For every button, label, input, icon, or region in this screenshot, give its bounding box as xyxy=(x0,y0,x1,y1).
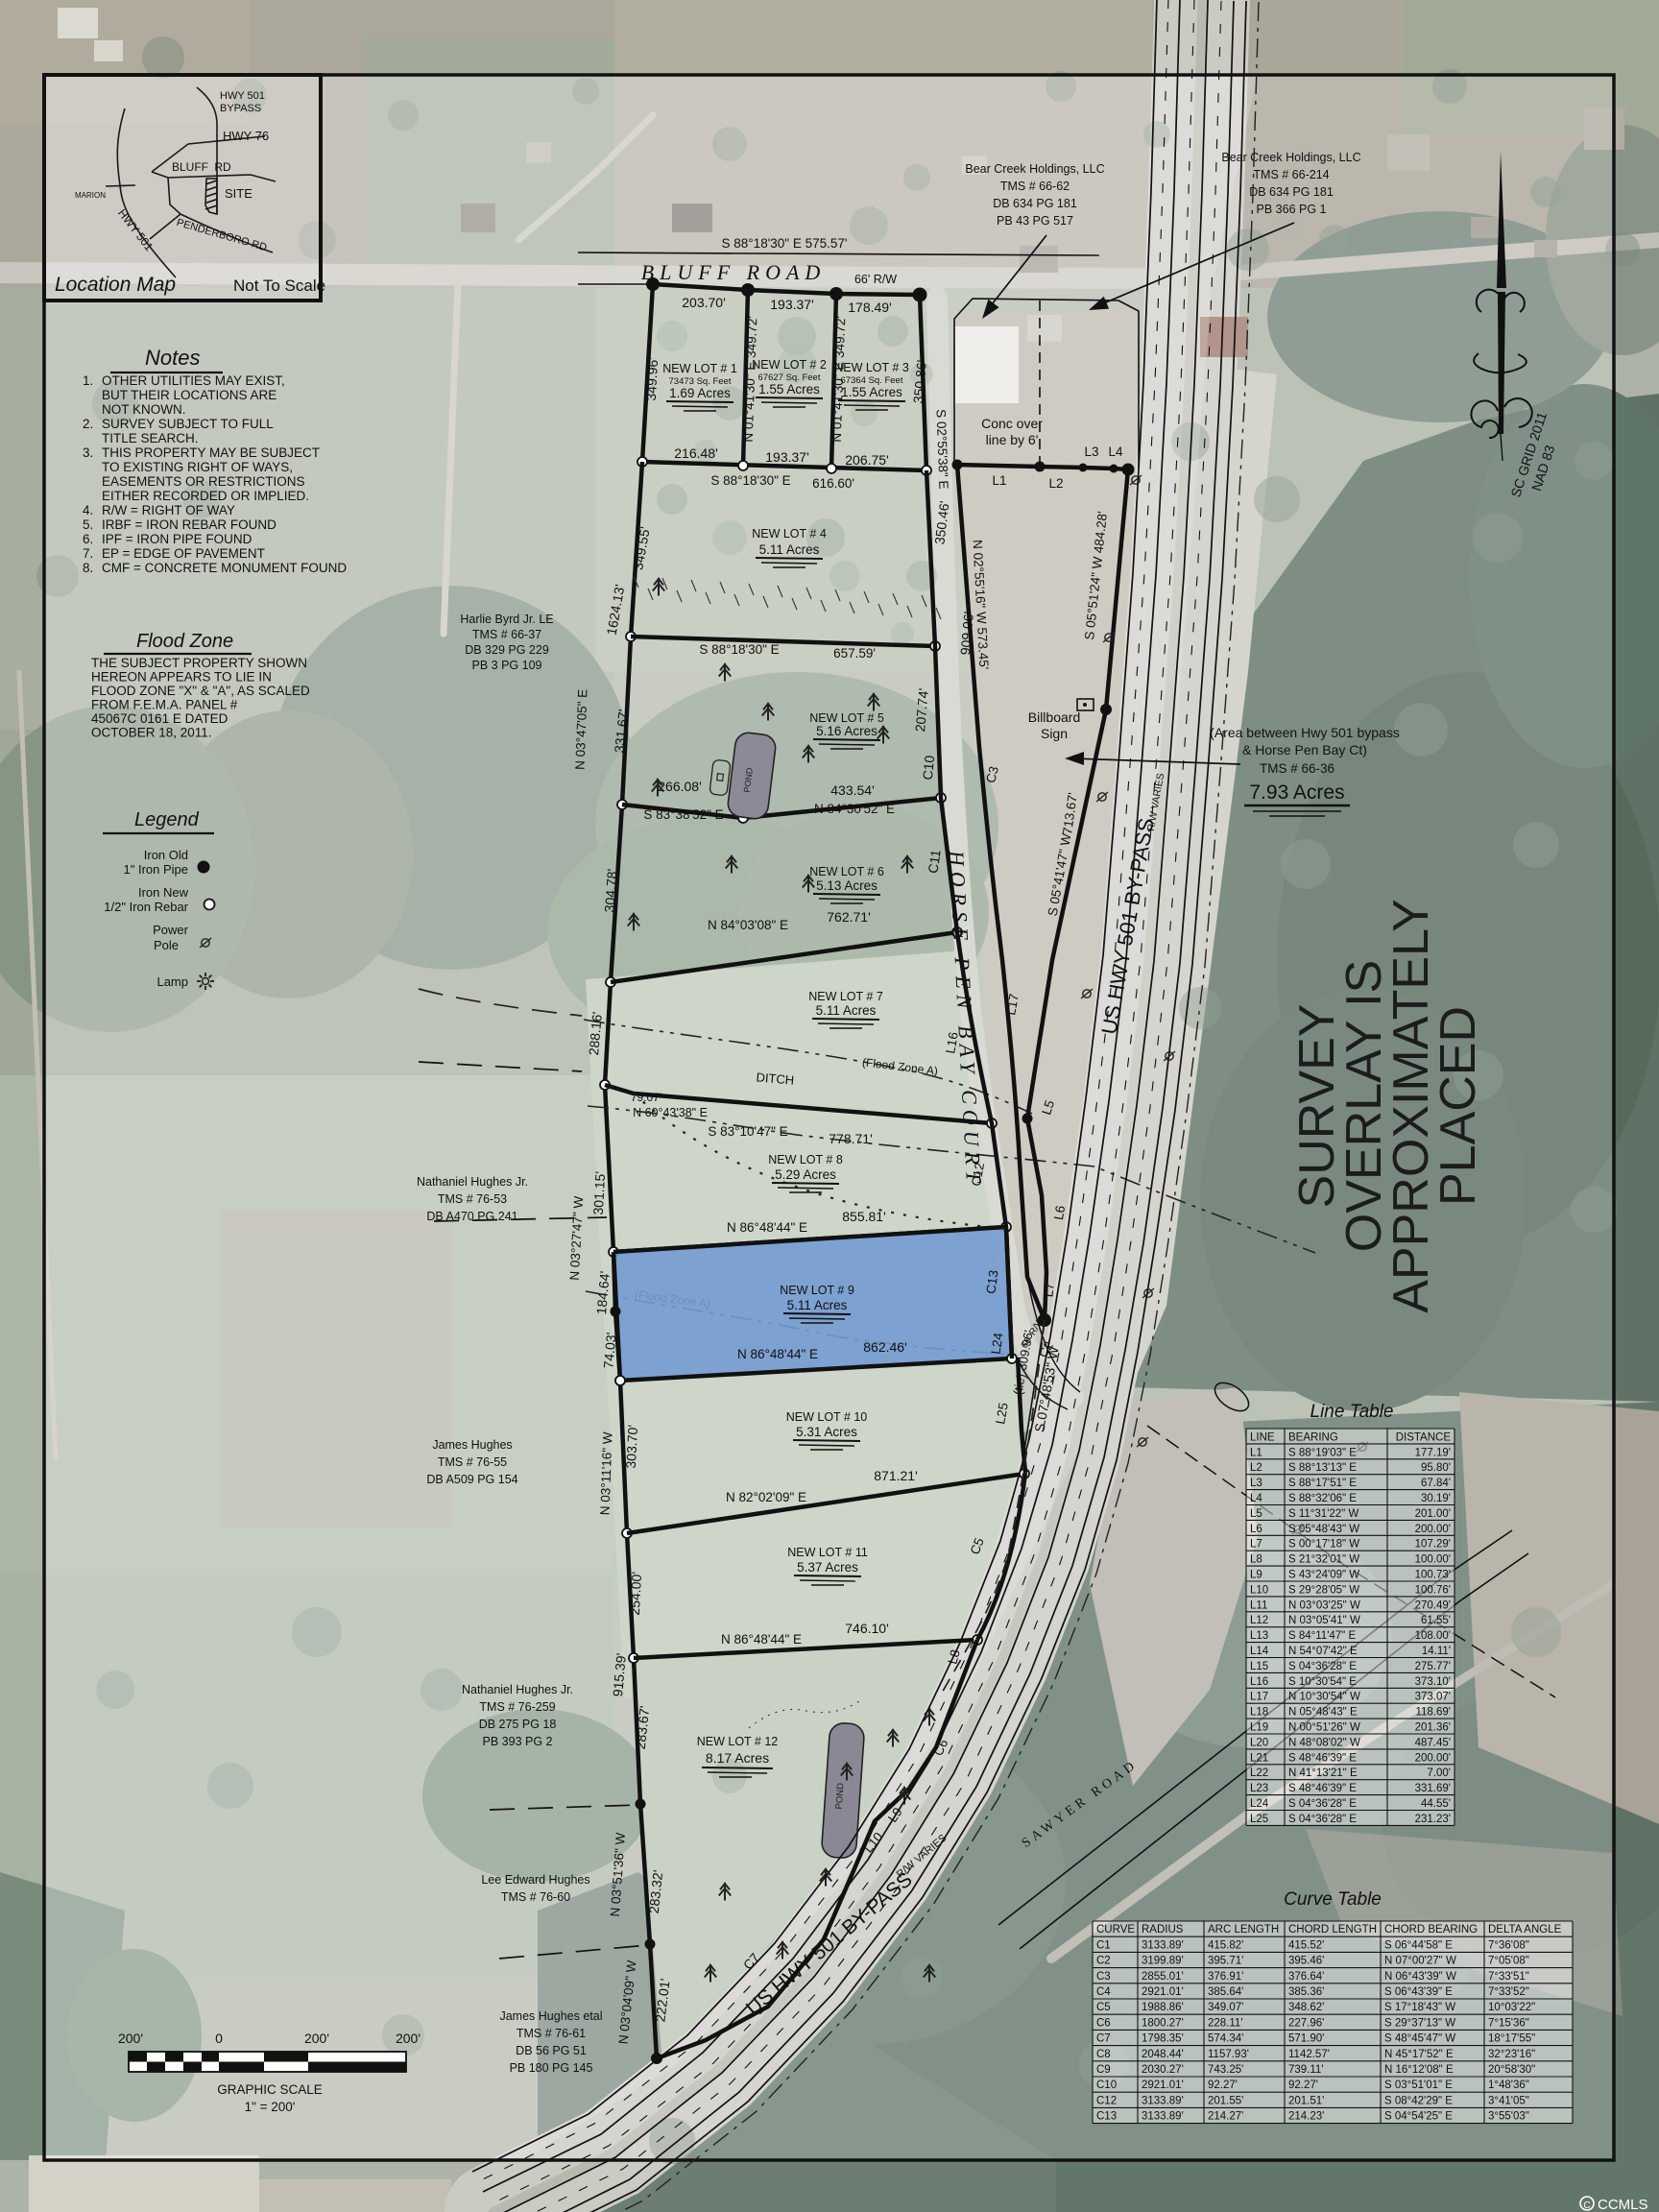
svg-text:DISTANCE: DISTANCE xyxy=(1396,1431,1452,1443)
svg-text:44.55': 44.55' xyxy=(1421,1798,1451,1810)
svg-text:3.: 3. xyxy=(83,445,93,460)
svg-text:0: 0 xyxy=(215,2031,223,2046)
svg-text:2855.01': 2855.01' xyxy=(1142,1971,1184,1983)
svg-text:Iron New: Iron New xyxy=(138,885,189,900)
svg-text:373.07': 373.07' xyxy=(1415,1692,1451,1703)
svg-text:C9: C9 xyxy=(1096,2064,1111,2076)
svg-text:L5: L5 xyxy=(1250,1508,1262,1520)
svg-text:C6: C6 xyxy=(1096,2017,1111,2029)
svg-text:C8: C8 xyxy=(1096,2049,1111,2060)
svg-text:TMS # 76-55: TMS # 76-55 xyxy=(438,1455,507,1469)
svg-text:TMS # 76-53: TMS # 76-53 xyxy=(438,1192,507,1206)
svg-text:Location Map: Location Map xyxy=(55,274,176,296)
svg-text:S 21°32'01" W: S 21°32'01" W xyxy=(1288,1554,1359,1566)
svg-text:Curve Table: Curve Table xyxy=(1284,1889,1382,1910)
svg-text:NEW LOT # 10: NEW LOT # 10 xyxy=(786,1410,868,1424)
svg-text:EASEMENTS OR RESTRICTIONS: EASEMENTS OR RESTRICTIONS xyxy=(102,474,305,489)
svg-text:100.00': 100.00' xyxy=(1415,1554,1451,1566)
svg-text:L17: L17 xyxy=(1250,1692,1268,1703)
svg-text:S 06°43'39" E: S 06°43'39" E xyxy=(1384,1986,1453,1998)
svg-text:S 08°42'29" E: S 08°42'29" E xyxy=(1384,2095,1453,2106)
svg-text:S 43°24'09" W: S 43°24'09" W xyxy=(1288,1570,1359,1581)
svg-text:N 48°08'02" W: N 48°08'02" W xyxy=(1288,1737,1360,1748)
svg-text:C10: C10 xyxy=(1096,2080,1117,2091)
svg-text:3133.89': 3133.89' xyxy=(1142,2095,1184,2106)
svg-text:349.96': 349.96' xyxy=(643,357,661,401)
svg-text:415.82': 415.82' xyxy=(1208,1939,1243,1951)
svg-text:Flood Zone: Flood Zone xyxy=(136,631,233,652)
svg-text:100.73': 100.73' xyxy=(1415,1570,1451,1581)
svg-text:L6: L6 xyxy=(1051,1205,1068,1221)
svg-text:200.00': 200.00' xyxy=(1415,1524,1451,1535)
svg-text:N 03°47'05" E: N 03°47'05" E xyxy=(573,689,590,771)
svg-text:L9: L9 xyxy=(1250,1570,1262,1581)
svg-text:385.36': 385.36' xyxy=(1288,1986,1324,1998)
svg-text:657.59': 657.59' xyxy=(833,646,876,661)
svg-text:45067C 0161 E DATED: 45067C 0161 E DATED xyxy=(91,711,228,726)
svg-text:N 16°12'08" E: N 16°12'08" E xyxy=(1384,2064,1454,2076)
svg-text:DB A509 PG 154: DB A509 PG 154 xyxy=(426,1473,517,1486)
svg-text:N 03°03'25" W: N 03°03'25" W xyxy=(1288,1599,1360,1611)
svg-text:TITLE SEARCH.: TITLE SEARCH. xyxy=(102,431,199,445)
svg-text:30.19': 30.19' xyxy=(1421,1493,1451,1504)
svg-text:Power: Power xyxy=(153,923,189,937)
svg-text:S 48°45'47" W: S 48°45'47" W xyxy=(1384,2033,1455,2045)
svg-text:S 00°17'18" W: S 00°17'18" W xyxy=(1288,1539,1359,1551)
svg-text:7°33'52": 7°33'52" xyxy=(1488,1986,1529,1998)
svg-text:5.13 Acres: 5.13 Acres xyxy=(816,878,878,893)
svg-text:1157.93': 1157.93' xyxy=(1208,2049,1249,2060)
svg-text:395.46': 395.46' xyxy=(1288,1956,1324,1967)
svg-text:S 10°30'54" E: S 10°30'54" E xyxy=(1288,1676,1357,1688)
svg-text:Iron Old: Iron Old xyxy=(144,848,188,862)
svg-text:487.45': 487.45' xyxy=(1415,1737,1451,1748)
svg-text:201.51': 201.51' xyxy=(1288,2095,1324,2106)
svg-text:NEW LOT # 8: NEW LOT # 8 xyxy=(768,1153,843,1166)
svg-text:Harlie Byrd Jr. LE: Harlie Byrd Jr. LE xyxy=(460,613,553,626)
svg-text:7°15'36": 7°15'36" xyxy=(1488,2017,1529,2029)
svg-text:N 03°11'16" W: N 03°11'16" W xyxy=(597,1431,614,1516)
svg-text:N 86°48'44" E: N 86°48'44" E xyxy=(721,1632,802,1647)
svg-text:L23: L23 xyxy=(1250,1783,1268,1794)
svg-text:739.11': 739.11' xyxy=(1288,2064,1324,2076)
svg-text:376.91': 376.91' xyxy=(1208,1971,1243,1983)
svg-text:NEW LOT # 1: NEW LOT # 1 xyxy=(662,362,737,375)
svg-text:N 41°13'21" E: N 41°13'21" E xyxy=(1288,1767,1358,1779)
svg-text:778.71': 778.71' xyxy=(829,1131,873,1146)
svg-text:92.27': 92.27' xyxy=(1288,2080,1318,2091)
svg-text:Not To Scale: Not To Scale xyxy=(233,276,325,295)
svg-text:66' R/W: 66' R/W xyxy=(854,273,897,286)
svg-text:5.11 Acres: 5.11 Acres xyxy=(816,1003,877,1018)
svg-text:(Area between Hwy 501 bypass: (Area between Hwy 501 bypass xyxy=(1210,725,1400,740)
svg-text:177.19': 177.19' xyxy=(1415,1447,1451,1458)
svg-text:N 03°05'41" W: N 03°05'41" W xyxy=(1288,1615,1360,1626)
svg-text:14.11': 14.11' xyxy=(1422,1646,1451,1657)
svg-text:N 10°30'54" W: N 10°30'54" W xyxy=(1288,1692,1360,1703)
svg-text:2921.01': 2921.01' xyxy=(1142,1986,1184,1998)
svg-text:348.62': 348.62' xyxy=(1288,2002,1324,2013)
svg-text:TO EXISTING RIGHT OF WAYS,: TO EXISTING RIGHT OF WAYS, xyxy=(102,460,293,474)
svg-text:N 45°17'52" E: N 45°17'52" E xyxy=(1384,2049,1454,2060)
svg-text:10°03'22": 10°03'22" xyxy=(1488,2002,1535,2013)
svg-text:L20: L20 xyxy=(1250,1737,1268,1748)
svg-text:1/2" Iron Rebar: 1/2" Iron Rebar xyxy=(104,900,188,914)
svg-text:5.11 Acres: 5.11 Acres xyxy=(759,542,820,557)
svg-text:Billboard: Billboard xyxy=(1028,709,1080,725)
svg-text:7.00': 7.00' xyxy=(1427,1767,1451,1779)
svg-text:L7: L7 xyxy=(1250,1539,1262,1551)
svg-text:HWY 76: HWY 76 xyxy=(223,129,269,143)
svg-text:92.27': 92.27' xyxy=(1208,2080,1238,2091)
svg-text:203.70': 203.70' xyxy=(682,295,726,310)
svg-text:L4: L4 xyxy=(1108,445,1123,459)
svg-text:1.55 Acres: 1.55 Acres xyxy=(841,385,902,399)
svg-text:BLUFF ROAD: BLUFF ROAD xyxy=(641,260,827,284)
svg-text:385.64': 385.64' xyxy=(1208,1986,1243,1998)
svg-text:BLUFF: BLUFF xyxy=(172,160,208,174)
svg-text:L14: L14 xyxy=(1250,1646,1269,1657)
svg-text:TMS # 76-60: TMS # 76-60 xyxy=(501,1890,570,1904)
svg-text:200': 200' xyxy=(396,2031,421,2046)
svg-text:1142.57': 1142.57' xyxy=(1288,2049,1330,2060)
svg-text:Bear Creek Holdings, LLC: Bear Creek Holdings, LLC xyxy=(1221,151,1360,164)
svg-text:108.00': 108.00' xyxy=(1415,1630,1451,1642)
svg-text:1.69 Acres: 1.69 Acres xyxy=(669,386,731,400)
svg-text:S 03°51'01" E: S 03°51'01" E xyxy=(1384,2080,1453,2091)
svg-text:200.00': 200.00' xyxy=(1415,1752,1451,1764)
svg-text:304.78': 304.78' xyxy=(601,868,619,913)
svg-text:IRBF = IRON REBAR FOUND: IRBF = IRON REBAR FOUND xyxy=(102,517,276,532)
svg-text:L11: L11 xyxy=(1250,1599,1267,1611)
svg-text:2.: 2. xyxy=(83,417,93,431)
svg-text:193.37': 193.37' xyxy=(765,449,809,465)
svg-text:L24: L24 xyxy=(989,1332,1006,1356)
svg-text:L13: L13 xyxy=(1250,1630,1268,1642)
svg-text:C1: C1 xyxy=(1096,1939,1111,1951)
svg-text:S 29°37'13" W: S 29°37'13" W xyxy=(1384,2017,1455,2029)
svg-text:PB 366 PG 1: PB 366 PG 1 xyxy=(1257,203,1327,216)
svg-text:BUT THEIR LOCATIONS ARE: BUT THEIR LOCATIONS ARE xyxy=(102,388,276,402)
svg-text:3199.89': 3199.89' xyxy=(1142,1956,1184,1967)
svg-text:301.15': 301.15' xyxy=(590,1171,608,1215)
svg-text:N 06°43'39" W: N 06°43'39" W xyxy=(1384,1971,1456,1983)
svg-text:DB 634 PG 181: DB 634 PG 181 xyxy=(1249,185,1334,199)
svg-text:L3: L3 xyxy=(1084,445,1098,459)
svg-text:1" Iron Pipe: 1" Iron Pipe xyxy=(124,862,189,877)
svg-text:Pole: Pole xyxy=(154,938,179,952)
svg-text:L10: L10 xyxy=(1250,1584,1268,1596)
svg-text:100.76': 100.76' xyxy=(1415,1584,1451,1596)
svg-text:TMS # 76-61: TMS # 76-61 xyxy=(517,2027,586,2040)
svg-text:THE SUBJECT PROPERTY SHOWN: THE SUBJECT PROPERTY SHOWN xyxy=(91,656,307,670)
svg-text:TMS # 66-37: TMS # 66-37 xyxy=(472,628,541,641)
svg-text:201.55': 201.55' xyxy=(1208,2095,1243,2106)
svg-text:C5: C5 xyxy=(1096,2002,1111,2013)
svg-text:NEW LOT # 12: NEW LOT # 12 xyxy=(697,1735,779,1748)
svg-text:DB 329 PG 229: DB 329 PG 229 xyxy=(465,643,549,657)
svg-text:L22: L22 xyxy=(1250,1767,1268,1779)
svg-text:L6: L6 xyxy=(1250,1524,1262,1535)
svg-text:571.90': 571.90' xyxy=(1288,2033,1324,2045)
svg-text:214.23': 214.23' xyxy=(1288,2111,1324,2123)
svg-text:BEARING: BEARING xyxy=(1288,1431,1338,1443)
svg-text:1988.86': 1988.86' xyxy=(1142,2002,1184,2013)
svg-text:Lamp: Lamp xyxy=(156,974,188,989)
svg-text:N 82°02'09" E: N 82°02'09" E xyxy=(726,1490,806,1504)
svg-text:HEREON APPEARS TO LIE IN: HEREON APPEARS TO LIE IN xyxy=(91,670,272,685)
svg-text:303.70': 303.70' xyxy=(623,1425,640,1469)
svg-text:5.11 Acres: 5.11 Acres xyxy=(787,1298,848,1312)
svg-text:NEW LOT # 11: NEW LOT # 11 xyxy=(787,1546,868,1559)
svg-text:S 48°46'39" E: S 48°46'39" E xyxy=(1288,1783,1357,1794)
svg-text:C4: C4 xyxy=(1096,1986,1111,1998)
svg-text:C11: C11 xyxy=(925,849,943,875)
svg-text:L8: L8 xyxy=(1250,1554,1262,1566)
svg-text:S 88°32'06" E: S 88°32'06" E xyxy=(1288,1493,1357,1504)
svg-text:95.80': 95.80' xyxy=(1421,1462,1451,1474)
svg-text:S 17°18'43" W: S 17°18'43" W xyxy=(1384,2002,1455,2013)
svg-text:& Horse Pen Bay Ct): & Horse Pen Bay Ct) xyxy=(1242,742,1367,757)
svg-text:NEW LOT # 5: NEW LOT # 5 xyxy=(809,711,884,725)
svg-text:3°55'03": 3°55'03" xyxy=(1488,2111,1529,2123)
svg-text:Line Table: Line Table xyxy=(1310,1402,1394,1422)
svg-text:862.46': 862.46' xyxy=(863,1339,907,1355)
svg-text:61.55': 61.55' xyxy=(1421,1615,1451,1626)
svg-text:Nathaniel Hughes Jr.: Nathaniel Hughes Jr. xyxy=(417,1175,528,1189)
svg-text:2030.27': 2030.27' xyxy=(1142,2064,1184,2076)
svg-text:N 05°48'43" E: N 05°48'43" E xyxy=(1288,1707,1358,1719)
svg-text:CHORD BEARING: CHORD BEARING xyxy=(1384,1924,1478,1935)
svg-text:1" = 200': 1" = 200' xyxy=(245,2100,296,2114)
svg-text:L7: L7 xyxy=(1041,1282,1056,1297)
svg-text:NEW LOT # 4: NEW LOT # 4 xyxy=(752,527,827,541)
svg-text:N 54°07'42" E: N 54°07'42" E xyxy=(1288,1646,1358,1657)
svg-text:S 05°48'43" W: S 05°48'43" W xyxy=(1288,1524,1359,1535)
svg-text:PLACED: PLACED xyxy=(1431,1006,1486,1206)
svg-text:TMS # 66-214: TMS # 66-214 xyxy=(1253,168,1329,181)
svg-text:1.55 Acres: 1.55 Acres xyxy=(758,382,820,397)
svg-text:L1: L1 xyxy=(1250,1447,1262,1458)
svg-text:107.29': 107.29' xyxy=(1415,1539,1451,1551)
svg-text:N 00°51'26" W: N 00°51'26" W xyxy=(1288,1722,1360,1734)
svg-text:MARION: MARION xyxy=(75,191,106,200)
svg-text:118.69': 118.69' xyxy=(1415,1707,1451,1719)
svg-text:67.84': 67.84' xyxy=(1421,1478,1451,1489)
svg-text:N 86°48'44" E: N 86°48'44" E xyxy=(737,1347,818,1361)
svg-text:TMS # 76-259: TMS # 76-259 xyxy=(479,1700,555,1714)
svg-text:L4: L4 xyxy=(1250,1493,1262,1504)
svg-text:Bear Creek Holdings, LLC: Bear Creek Holdings, LLC xyxy=(965,162,1104,176)
svg-text:L1: L1 xyxy=(992,473,1006,488)
svg-text:line by 6': line by 6' xyxy=(986,432,1039,447)
svg-text:266.08': 266.08' xyxy=(658,779,702,794)
svg-text:S 29°28'05" W: S 29°28'05" W xyxy=(1288,1584,1359,1596)
svg-text:N 84°30'52" E: N 84°30'52" E xyxy=(814,802,895,816)
svg-text:Sign: Sign xyxy=(1041,726,1068,741)
svg-text:214.27': 214.27' xyxy=(1208,2111,1243,2123)
svg-text:Conc over: Conc over xyxy=(981,416,1043,431)
svg-text:C2: C2 xyxy=(1096,1956,1111,1967)
svg-text:2048.44': 2048.44' xyxy=(1142,2049,1184,2060)
svg-text:POND: POND xyxy=(834,1783,847,1810)
svg-text:1800.27': 1800.27' xyxy=(1142,2017,1184,2029)
svg-text:C7: C7 xyxy=(1096,2033,1111,2045)
svg-text:L19: L19 xyxy=(1250,1722,1268,1734)
svg-text:415.52': 415.52' xyxy=(1288,1939,1324,1951)
svg-text:201.36': 201.36' xyxy=(1415,1722,1451,1734)
svg-text:201.00': 201.00' xyxy=(1415,1508,1451,1520)
svg-text:S 88°13'13" E: S 88°13'13" E xyxy=(1288,1462,1357,1474)
svg-text:S 04°54'25" E: S 04°54'25" E xyxy=(1384,2111,1453,2123)
svg-text:178.49': 178.49' xyxy=(848,300,892,315)
svg-text:R/W = RIGHT OF WAY: R/W = RIGHT OF WAY xyxy=(102,503,235,517)
svg-text:C13: C13 xyxy=(1096,2111,1117,2123)
svg-text:BYPASS: BYPASS xyxy=(220,103,261,114)
svg-text:Legend: Legend xyxy=(134,809,200,830)
svg-text:5.16 Acres: 5.16 Acres xyxy=(816,724,878,738)
svg-text:S 88°18'30" E: S 88°18'30" E xyxy=(710,473,790,488)
svg-text:349.07': 349.07' xyxy=(1208,2002,1243,2013)
svg-text:SURVEY SUBJECT TO FULL: SURVEY SUBJECT TO FULL xyxy=(102,417,274,431)
svg-text:C: C xyxy=(1583,2200,1590,2211)
svg-text:PB 3 PG 109: PB 3 PG 109 xyxy=(472,659,542,672)
svg-text:S 83°10'47" E: S 83°10'47" E xyxy=(708,1124,787,1139)
svg-text:Lee Edward Hughes: Lee Edward Hughes xyxy=(481,1873,589,1887)
svg-text:DELTA ANGLE: DELTA ANGLE xyxy=(1488,1924,1562,1935)
svg-text:275.77': 275.77' xyxy=(1415,1661,1451,1672)
svg-text:DB 634 PG 181: DB 634 PG 181 xyxy=(993,197,1077,210)
svg-text:216.48': 216.48' xyxy=(674,445,718,461)
svg-text:S 04°36'28" E: S 04°36'28" E xyxy=(1288,1661,1357,1672)
svg-text:HWY 501: HWY 501 xyxy=(220,90,265,102)
svg-text:LINE: LINE xyxy=(1250,1431,1275,1443)
svg-text:N 84°03'08" E: N 84°03'08" E xyxy=(708,918,788,932)
svg-text:DB 56 PG 51: DB 56 PG 51 xyxy=(516,2044,587,2057)
svg-text:331.69': 331.69' xyxy=(1415,1783,1451,1794)
svg-text:ARC LENGTH: ARC LENGTH xyxy=(1208,1924,1279,1935)
svg-text:CHORD LENGTH: CHORD LENGTH xyxy=(1288,1924,1377,1935)
svg-text:S 11°31'22" W: S 11°31'22" W xyxy=(1288,1508,1358,1520)
svg-text:227.96': 227.96' xyxy=(1288,2017,1324,2029)
svg-text:L21: L21 xyxy=(1250,1752,1268,1764)
svg-text:1°48'36": 1°48'36" xyxy=(1488,2080,1529,2091)
svg-text:L2: L2 xyxy=(1048,476,1063,491)
svg-text:200': 200' xyxy=(304,2031,329,2046)
svg-text:231.23': 231.23' xyxy=(1415,1814,1451,1825)
svg-text:NEW LOT # 2: NEW LOT # 2 xyxy=(752,358,827,372)
svg-text:S 83°38'52" E: S 83°38'52" E xyxy=(643,807,723,822)
svg-text:C10: C10 xyxy=(920,755,937,781)
svg-text:NEW LOT # 6: NEW LOT # 6 xyxy=(809,865,884,878)
svg-text:5.37 Acres: 5.37 Acres xyxy=(797,1560,858,1575)
svg-text:S 88°17'51" E: S 88°17'51" E xyxy=(1288,1478,1357,1489)
svg-text:Nathaniel Hughes Jr.: Nathaniel Hughes Jr. xyxy=(462,1683,573,1696)
svg-text:395.71': 395.71' xyxy=(1208,1956,1243,1967)
svg-text:IPF = IRON PIPE FOUND: IPF = IRON PIPE FOUND xyxy=(102,532,252,546)
svg-text:TMS # 66-62: TMS # 66-62 xyxy=(1000,180,1070,193)
svg-text:FROM F.E.M.A. PANEL #: FROM F.E.M.A. PANEL # xyxy=(91,698,238,712)
svg-text:746.10': 746.10' xyxy=(845,1621,889,1636)
svg-text:6.: 6. xyxy=(83,532,93,546)
svg-text:8.: 8. xyxy=(83,561,93,575)
svg-text:RADIUS: RADIUS xyxy=(1142,1924,1184,1935)
svg-text:TMS # 66-36: TMS # 66-36 xyxy=(1260,761,1334,776)
svg-text:RD: RD xyxy=(214,160,231,174)
svg-text:C12: C12 xyxy=(1096,2095,1117,2106)
svg-text:433.54': 433.54' xyxy=(830,782,875,798)
svg-text:OCTOBER 18, 2011.: OCTOBER 18, 2011. xyxy=(91,726,212,740)
svg-text:574.34': 574.34' xyxy=(1208,2033,1243,2045)
svg-text:20°58'30": 20°58'30" xyxy=(1488,2064,1535,2076)
svg-text:L18: L18 xyxy=(1250,1707,1268,1719)
svg-text:N 86°48'44" E: N 86°48'44" E xyxy=(727,1220,807,1235)
svg-text:PB 43 PG 517: PB 43 PG 517 xyxy=(997,214,1073,228)
svg-text:DB 275 PG 18: DB 275 PG 18 xyxy=(479,1718,557,1731)
svg-text:S 88°18'30" E 575.57': S 88°18'30" E 575.57' xyxy=(722,236,848,251)
svg-text:3133.89': 3133.89' xyxy=(1142,2111,1184,2123)
svg-text:OTHER UTILITIES MAY EXIST,: OTHER UTILITIES MAY EXIST, xyxy=(102,373,285,388)
svg-text:S 84°11'47" E: S 84°11'47" E xyxy=(1288,1630,1356,1642)
svg-text:3°41'05": 3°41'05" xyxy=(1488,2095,1529,2106)
svg-text:4.: 4. xyxy=(83,503,93,517)
svg-text:7.93 Acres: 7.93 Acres xyxy=(1249,781,1344,804)
svg-text:7°33'51": 7°33'51" xyxy=(1488,1971,1529,1983)
svg-text:PB 180 PG 145: PB 180 PG 145 xyxy=(510,2061,593,2075)
svg-text:L12: L12 xyxy=(1250,1615,1268,1626)
svg-text:373.10': 373.10' xyxy=(1415,1676,1451,1688)
svg-text:N 07°00'27" W: N 07°00'27" W xyxy=(1384,1956,1456,1967)
svg-text:206.75': 206.75' xyxy=(845,452,889,468)
svg-text:S 04°36'28" E: S 04°36'28" E xyxy=(1288,1814,1357,1825)
svg-text:193.37': 193.37' xyxy=(770,297,814,312)
svg-text:THIS PROPERTY MAY BE SUBJECT: THIS PROPERTY MAY BE SUBJECT xyxy=(102,445,320,460)
svg-text:S 88°18'30" E: S 88°18'30" E xyxy=(699,642,779,657)
svg-text:1798.35': 1798.35' xyxy=(1142,2033,1184,2045)
svg-text:CMF = CONCRETE MONUMENT FOUND: CMF = CONCRETE MONUMENT FOUND xyxy=(102,561,347,575)
svg-text:5.31 Acres: 5.31 Acres xyxy=(796,1425,857,1439)
svg-text:Notes: Notes xyxy=(145,346,200,370)
svg-text:18°17'55": 18°17'55" xyxy=(1488,2033,1535,2045)
svg-text:32°23'16": 32°23'16" xyxy=(1488,2049,1535,2060)
svg-text:8.17 Acres: 8.17 Acres xyxy=(706,1750,769,1766)
svg-text:James Hughes etal: James Hughes etal xyxy=(499,2009,602,2023)
svg-text:871.21': 871.21' xyxy=(874,1468,918,1483)
svg-text:5.: 5. xyxy=(83,517,93,532)
svg-text:254.00': 254.00' xyxy=(627,1572,644,1616)
svg-text:PB 393 PG 2: PB 393 PG 2 xyxy=(483,1735,553,1748)
svg-text:L25: L25 xyxy=(1250,1814,1268,1825)
svg-text:NEW LOT # 3: NEW LOT # 3 xyxy=(834,361,909,374)
svg-text:200': 200' xyxy=(118,2031,143,2046)
svg-text:S 02°55'38" E: S 02°55'38" E xyxy=(934,409,951,490)
svg-text:855.81': 855.81' xyxy=(842,1209,886,1224)
svg-text:NOT KNOWN.: NOT KNOWN. xyxy=(102,402,186,417)
svg-text:CCMLS: CCMLS xyxy=(1598,2197,1648,2212)
svg-text:7°36'08": 7°36'08" xyxy=(1488,1939,1529,1951)
svg-text:270.49': 270.49' xyxy=(1415,1599,1451,1611)
svg-text:7.: 7. xyxy=(83,546,93,561)
svg-text:EITHER RECORDED OR IMPLIED.: EITHER RECORDED OR IMPLIED. xyxy=(102,489,309,503)
svg-text:C3: C3 xyxy=(1096,1971,1111,1983)
svg-text:GRAPHIC SCALE: GRAPHIC SCALE xyxy=(217,2082,323,2097)
svg-text:NEW LOT # 7: NEW LOT # 7 xyxy=(808,990,883,1003)
svg-text:L15: L15 xyxy=(1250,1661,1268,1672)
svg-text:7°05'08": 7°05'08" xyxy=(1488,1956,1529,1967)
svg-text:1.: 1. xyxy=(83,373,93,388)
svg-text:S 88°19'03" E: S 88°19'03" E xyxy=(1288,1447,1357,1458)
svg-text:S 06°44'58" E: S 06°44'58" E xyxy=(1384,1939,1453,1951)
